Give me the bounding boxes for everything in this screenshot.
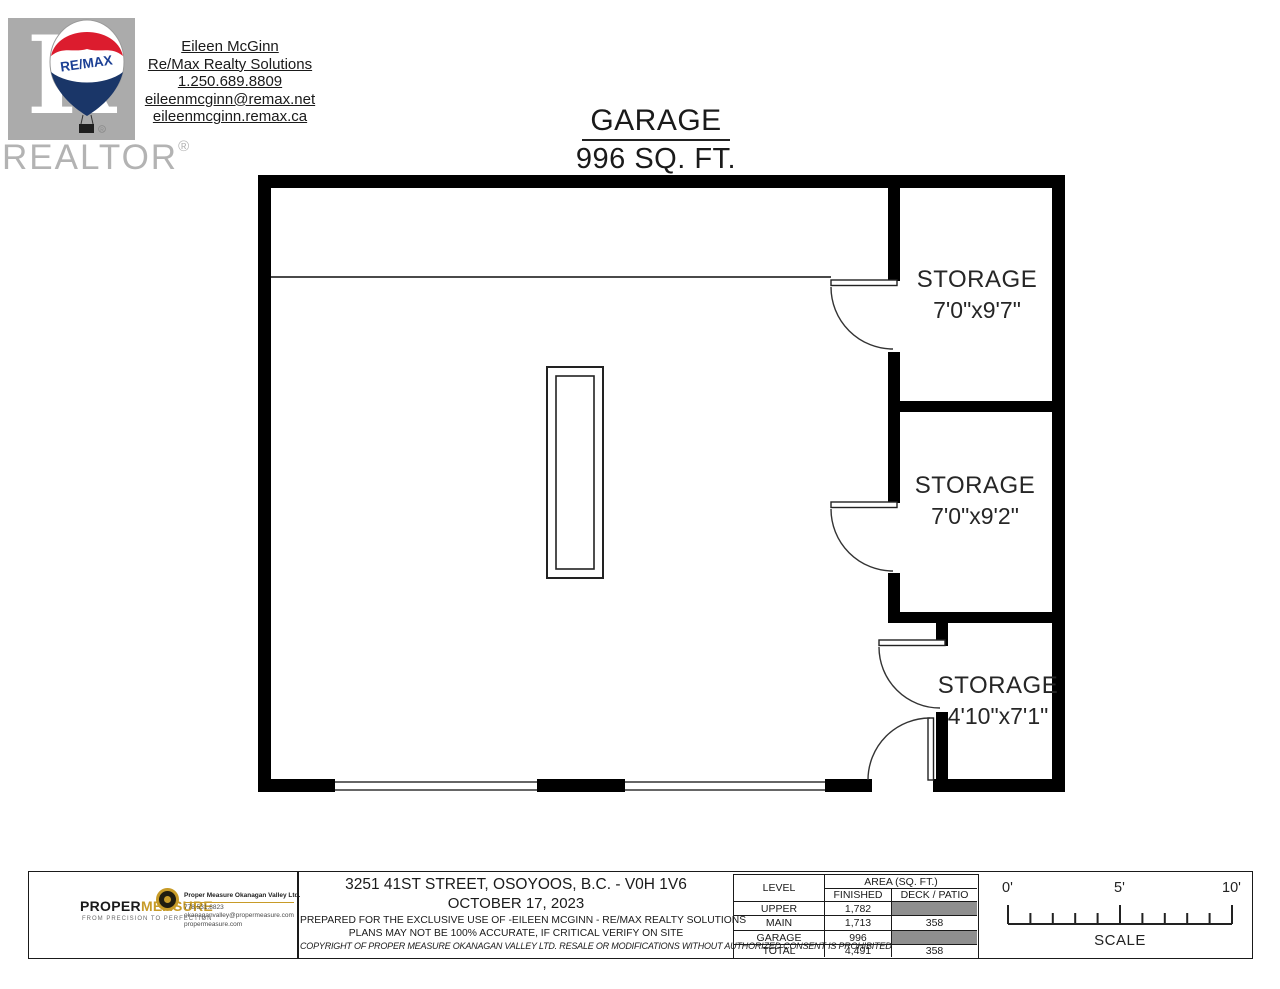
scale-block: 0' 5' 10' SCALE (1000, 876, 1240, 954)
agent-contact-block: Eileen McGinn Re/Max Realty Solutions 1.… (110, 38, 350, 126)
wall-bottom-2 (537, 779, 625, 792)
plan-date: OCTOBER 17, 2023 (300, 895, 732, 912)
scale-tick-0: 0' (1002, 880, 1013, 896)
scale-tick-5: 5' (1114, 880, 1125, 896)
agent-website: eileenmcginn.remax.ca (110, 108, 350, 126)
wall-bottom-3 (825, 779, 872, 792)
scale-tick-10: 10' (1222, 880, 1241, 896)
propermeasure-block: PROPERMEASURE FROM PRECISION TO PERFECTI… (34, 876, 294, 954)
propermeasure-phone: 778.531.8823 (184, 904, 294, 913)
propermeasure-website: propermeasure.com (184, 921, 294, 930)
row-main-deck: 358 (891, 915, 977, 930)
wall-top (258, 175, 1065, 188)
footer-center-block: 3251 41ST STREET, OSOYOOS, B.C. - V0H 1V… (300, 876, 732, 951)
row-garage-level: GARAGE (734, 930, 824, 944)
row-total-finished: 4,491 (824, 944, 891, 957)
room-label-storage-1: STORAGE 7'0"x9'7" (882, 266, 1072, 324)
area-table-header-deck: DECK / PATIO (891, 888, 977, 901)
garage-door-opening-1 (335, 782, 537, 790)
area-table: LEVEL AREA (SQ. FT.) FINISHED DECK / PAT… (733, 874, 979, 959)
realtor-wordmark: REALTOR® (2, 138, 152, 178)
row-upper-deck (891, 901, 977, 915)
center-column-feature (547, 367, 603, 578)
agent-brokerage: Re/Max Realty Solutions (110, 56, 350, 74)
row-main-finished: 1,713 (824, 915, 891, 930)
footer-divider (297, 871, 299, 959)
wall-divider-2 (888, 612, 1065, 623)
propermeasure-email: okanaganvalley@propermeasure.com (184, 912, 294, 921)
wall-bottom-4 (933, 779, 1065, 792)
plan-title-area: 996 SQ. FT. (456, 143, 856, 176)
accuracy-note: PLANS MAY NOT BE 100% ACCURATE, IF CRITI… (300, 928, 732, 939)
wall-left (258, 175, 271, 792)
room-label-storage-3: STORAGE 4'10"x7'1" (903, 672, 1093, 730)
row-garage-finished: 996 (824, 930, 891, 944)
garage-door-opening-2 (625, 782, 825, 790)
copyright-note: COPYRIGHT OF PROPER MEASURE OKANAGAN VAL… (300, 941, 732, 951)
area-table-header-finished: FINISHED (824, 888, 891, 901)
floorplan-page: R REALTOR® R RE/MAX Eileen McGinn Re/Max… (0, 0, 1280, 989)
row-upper-finished: 1,782 (824, 901, 891, 915)
row-total-deck: 358 (891, 944, 977, 957)
propermeasure-company: Proper Measure Okanagan Valley Ltd. (184, 892, 294, 903)
area-table-header-area: AREA (SQ. FT.) (824, 875, 977, 888)
row-total-level: TOTAL (734, 944, 824, 957)
agent-phone: 1.250.689.8809 (110, 73, 350, 91)
scale-label: SCALE (1000, 932, 1240, 949)
property-address: 3251 41ST STREET, OSOYOOS, B.C. - V0H 1V… (300, 876, 732, 894)
plan-title: GARAGE 996 SQ. FT. (456, 104, 856, 176)
row-garage-deck (891, 930, 977, 944)
registered-mark-icon: ® (178, 138, 191, 155)
plan-title-name: GARAGE (582, 104, 729, 141)
row-main-level: MAIN (734, 915, 824, 930)
area-table-header-level: LEVEL (734, 875, 824, 901)
row-upper-level: UPPER (734, 901, 824, 915)
svg-text:R: R (100, 127, 104, 133)
propermeasure-logo-icon (156, 888, 179, 911)
wall-bottom-1 (258, 779, 335, 792)
room-label-storage-2: STORAGE 7'0"x9'2" (880, 472, 1070, 530)
prepared-for-note: PREPARED FOR THE EXCLUSIVE USE OF -EILEE… (300, 915, 732, 926)
wall-divider-1 (888, 401, 1065, 412)
propermeasure-contact: Proper Measure Okanagan Valley Ltd. 778.… (184, 892, 294, 929)
agent-email: eileenmcginn@remax.net (110, 91, 350, 109)
agent-name: Eileen McGinn (110, 38, 350, 56)
